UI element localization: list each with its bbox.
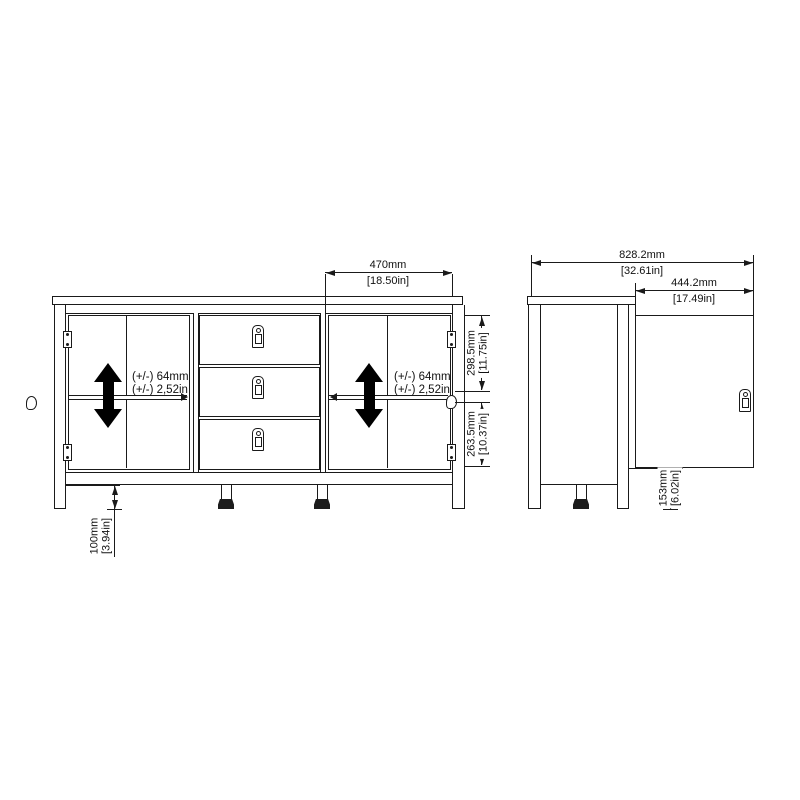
dim-828-ext-right (753, 255, 754, 315)
right-shelf-end-tick (330, 393, 337, 401)
dim-100-label-mm: 100mm (90, 518, 102, 555)
front-top-panel (52, 296, 463, 305)
technical-drawing-canvas: (+/-) 64mm (+/-) 2,52in (+/-) 64mm (+/-)… (0, 0, 800, 800)
dim-153-ext-floor (663, 509, 678, 510)
left-door-handle-icon (26, 396, 37, 410)
left-door-top-hinge-icon (63, 331, 72, 348)
dim-100-label: 100mm [3.94in] (89, 516, 114, 557)
dim-298-ext-bottom (455, 391, 490, 392)
dim-470-arrow-right (443, 270, 452, 276)
front-left-leg (221, 485, 232, 499)
left-door-divider-line (126, 315, 127, 468)
dim-263-label-in: [10.37in] (478, 411, 490, 457)
front-left-foot (218, 499, 234, 509)
dim-470-label-mm: 470mm (369, 259, 408, 271)
dim-298-arrow-bottom (479, 381, 485, 390)
drawer-middle-handle-icon (252, 376, 264, 399)
dim-100-label-in: [3.94in] (101, 518, 113, 555)
dim-444-arrow-right (744, 288, 753, 294)
drawer-bottom-handle-icon (252, 428, 264, 451)
front-interior-bottom-line (65, 472, 453, 473)
side-foot (573, 499, 589, 509)
dim-263-label: 263.5mm [10.37in] (466, 409, 491, 459)
dim-100-arrow-top (112, 486, 118, 495)
right-door-top-hinge-icon (447, 331, 456, 348)
drawer-bank-right-upright (320, 313, 326, 472)
dim-298-label-mm: 298.5mm (467, 330, 479, 376)
dim-153-label-mm: 153mm (659, 470, 671, 507)
dim-298-label: 298.5mm [11.75in] (466, 328, 491, 378)
dim-828-arrow-right (744, 260, 753, 266)
front-right-foot (314, 499, 330, 509)
dim-470-arrow-left (326, 270, 335, 276)
dim-100-line (114, 485, 115, 557)
dim-298-ext-top (464, 315, 490, 316)
side-front-panel (617, 305, 629, 509)
side-back-panel (528, 305, 541, 509)
side-door-handle-icon (739, 389, 751, 412)
right-shelf-tolerance-in: (+/-) 2,52in (394, 384, 451, 397)
left-door-bottom-hinge-icon (63, 444, 72, 461)
left-shelf-adjust-arrow-icon (94, 363, 122, 428)
dim-828-label-in: [32.61in] (620, 265, 664, 277)
dim-298-label-in: [11.75in] (478, 330, 490, 376)
dim-828-line (531, 262, 753, 263)
dim-470-ext-right (452, 274, 453, 296)
front-bottom-rail-line (65, 484, 453, 485)
dim-828-label-mm: 828.2mm (618, 249, 666, 261)
side-open-door (635, 315, 754, 468)
dim-153-label: 153mm [6.02in] (658, 468, 683, 509)
dim-444-label-in: [17.49in] (672, 293, 716, 305)
dim-470-ext-left (325, 274, 326, 313)
front-right-leg (317, 485, 328, 499)
left-shelf-tolerance-in: (+/-) 2,52in (132, 384, 189, 397)
right-shelf-tolerance-note: (+/-) 64mm (+/-) 2,52in (394, 371, 451, 397)
dim-100-arrow-bottom (112, 500, 118, 509)
dim-470-line (325, 272, 452, 273)
dim-444-label-mm: 444.2mm (670, 277, 718, 289)
dim-828-arrow-left (532, 260, 541, 266)
drawer-top-handle-icon (252, 325, 264, 348)
front-interior-top-line (65, 313, 453, 314)
right-door-divider-line (387, 315, 388, 468)
dim-298-arrow-top (479, 317, 485, 326)
dim-444-line (635, 290, 753, 291)
right-shelf-tolerance-mm: (+/-) 64mm (394, 371, 451, 384)
dim-444-arrow-left (636, 288, 645, 294)
right-door-bottom-hinge-icon (447, 444, 456, 461)
dim-263-label-mm: 263.5mm (467, 411, 479, 457)
left-shelf-tolerance-mm: (+/-) 64mm (132, 371, 189, 384)
right-shelf-adjust-arrow-icon (355, 363, 383, 428)
dim-470-label-in: [18.50in] (366, 275, 410, 287)
dim-153-label-in: [6.02in] (670, 470, 682, 507)
side-top-panel (527, 296, 636, 305)
left-shelf-tolerance-note: (+/-) 64mm (+/-) 2,52in (132, 371, 189, 397)
dim-263-ext-bottom (464, 466, 490, 467)
dim-263-ext-top (455, 402, 490, 403)
side-leg (576, 485, 587, 499)
